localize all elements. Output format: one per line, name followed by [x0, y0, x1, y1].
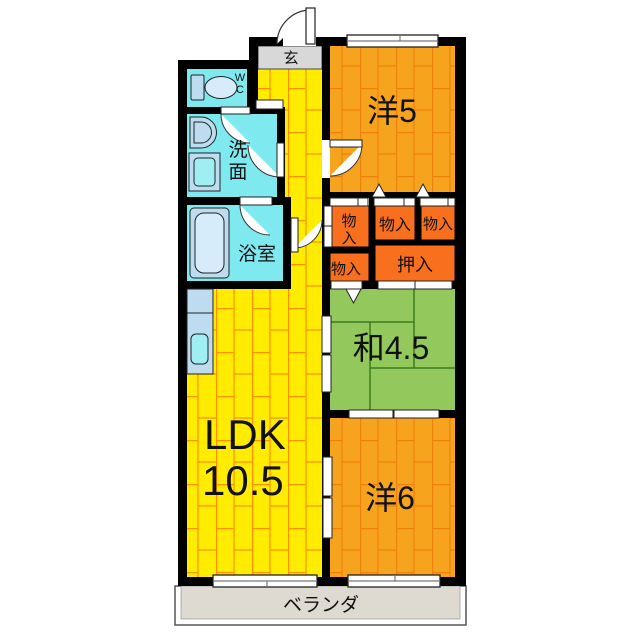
closet-tall-label-2: 入 — [341, 230, 356, 247]
japanese-south-slider-a — [349, 410, 393, 418]
wc-door-leaf — [221, 107, 250, 114]
closet-right-label: 物入 — [423, 216, 453, 233]
washroom-label-2: 面 — [228, 162, 247, 183]
wc-label-line1: W — [235, 72, 246, 84]
floor-plan-canvas: 玄 W C 洗 面 浴室 洋5 物 入 物入 物入 物入 押入 和4.5 LDK… — [0, 0, 640, 640]
ldk-western6-slider — [323, 457, 332, 538]
bathtub-icon — [190, 208, 229, 278]
ldk-label: LDK — [204, 411, 286, 458]
closet-tall-top-slider — [330, 198, 368, 206]
washroom-label-1: 洗 — [228, 139, 247, 161]
closet-tall-label-1: 物 — [341, 213, 356, 230]
bathroom-door-leaf — [240, 197, 272, 205]
veranda-label: ベランダ — [283, 594, 359, 616]
japanese-room-label: 和4.5 — [353, 330, 430, 366]
toilet-icon — [191, 75, 237, 100]
japanese-south-slider-b — [394, 410, 439, 418]
washroom-door-leaf — [277, 143, 284, 177]
closet-right-slider — [420, 198, 455, 206]
western5-door-leaf — [330, 140, 362, 147]
kitchen-counter-icon — [187, 289, 213, 374]
western5-door-opening — [322, 140, 330, 178]
closet-lower-label: 物入 — [331, 261, 361, 278]
closet-mid-slider — [374, 198, 415, 206]
oshiire-slider-right — [415, 281, 452, 289]
hall-threshold-bar — [256, 100, 283, 109]
closet-lower-slider — [331, 281, 362, 289]
washer-icon — [190, 117, 216, 148]
wc-label-line2: C — [236, 84, 244, 96]
floor-plan: 玄 W C 洗 面 浴室 洋5 物 入 物入 物入 物入 押入 和4.5 LDK… — [0, 0, 640, 640]
ldk-western6-slider-b — [323, 498, 332, 538]
western5-label: 洋5 — [367, 93, 417, 129]
hall-ldk-door-leaf — [291, 218, 298, 252]
entry-label: 玄 — [283, 50, 298, 67]
oshiire-slider-left — [378, 281, 415, 289]
ldk-size-label: 10.5 — [202, 457, 284, 504]
japanese-west-slider-b — [322, 355, 331, 392]
oshiire-label: 押入 — [397, 255, 433, 275]
ldk-western6-slider-a — [323, 457, 332, 496]
vanity-sink-icon — [189, 153, 220, 191]
closet-mid-label: 物入 — [379, 216, 411, 234]
bathroom-label: 浴室 — [238, 243, 276, 265]
western6-label: 洋6 — [365, 480, 415, 516]
entry-door-leaf — [306, 8, 315, 44]
japanese-west-slider-a — [322, 316, 331, 353]
